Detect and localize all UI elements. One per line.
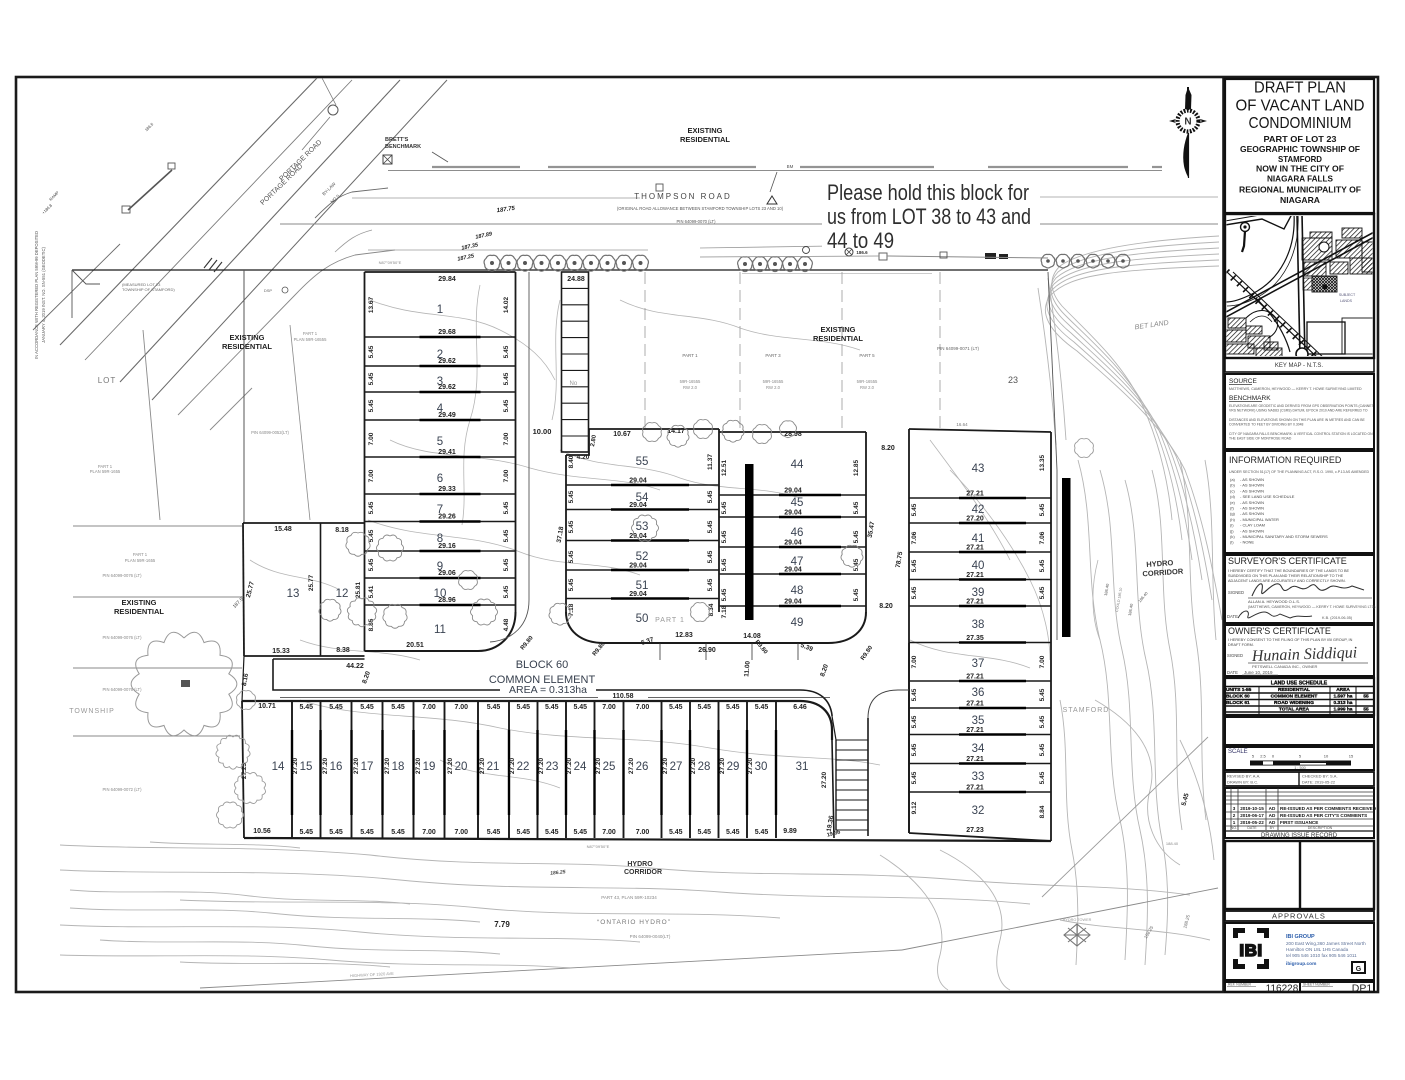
svg-text:EXISTING: EXISTING (121, 598, 156, 607)
svg-text:5.45: 5.45 (391, 829, 405, 836)
svg-text:27.21: 27.21 (966, 756, 984, 763)
svg-text:15: 15 (1349, 754, 1354, 759)
svg-text:27.20: 27.20 (566, 757, 573, 774)
svg-text:5.45: 5.45 (360, 829, 374, 836)
svg-text:PIN 64099-0076 (LT): PIN 64099-0076 (LT) (102, 635, 142, 640)
svg-text:ELEVATIONS ARE GEODETIC AND DE: ELEVATIONS ARE GEODETIC AND DERIVED FROM… (1229, 404, 1374, 408)
svg-text:AREA = 0.313ha: AREA = 0.313ha (509, 684, 587, 696)
svg-text:2019-05-22: 2019-05-22 (1240, 820, 1264, 825)
svg-text:K.B. (2019-06-05): K.B. (2019-06-05) (1322, 616, 1353, 620)
svg-text:AREA: AREA (1336, 687, 1350, 693)
svg-text:55: 55 (636, 456, 649, 468)
svg-text:5.45: 5.45 (707, 490, 714, 503)
svg-text:25.77: 25.77 (308, 574, 315, 591)
svg-text:10.56: 10.56 (253, 828, 271, 835)
svg-text:THE EAST SIDE OF MONTROSE ROAD: THE EAST SIDE OF MONTROSE ROAD (1229, 437, 1292, 441)
svg-text:PART 5: PART 5 (859, 353, 875, 358)
svg-text:8.20: 8.20 (881, 445, 895, 452)
svg-text:27.20: 27.20 (353, 757, 360, 774)
svg-text:RESIDENTIAL: RESIDENTIAL (680, 135, 730, 144)
svg-text:5.45: 5.45 (911, 559, 918, 572)
svg-text:(k): (k) (1230, 534, 1235, 539)
svg-text:49: 49 (791, 617, 804, 629)
svg-text:46: 46 (791, 527, 804, 539)
svg-text:18: 18 (392, 761, 405, 773)
svg-text:27.20: 27.20 (690, 757, 697, 774)
svg-text:I HEREBY CERTIFY THAT THE BOUN: I HEREBY CERTIFY THAT THE BOUNDARIES OF … (1228, 569, 1350, 573)
svg-text:UNDER SECTION 51(17) OF THE PL: UNDER SECTION 51(17) OF THE PLANNING ACT… (1229, 470, 1369, 474)
svg-text:DRAFT PLAN: DRAFT PLAN (1254, 80, 1346, 97)
svg-text:SUBJECT: SUBJECT (1339, 293, 1356, 297)
svg-text:TOWNSHIP: TOWNSHIP (69, 708, 115, 715)
svg-text:5.45: 5.45 (726, 829, 740, 836)
svg-text:8.84: 8.84 (1039, 805, 1046, 818)
svg-text:OF VACANT LAND: OF VACANT LAND (1236, 98, 1365, 115)
svg-text:(c): (c) (1230, 488, 1235, 493)
svg-text:OWNER'S CERTIFICATE: OWNER'S CERTIFICATE (1228, 626, 1331, 636)
svg-text:5.45: 5.45 (721, 530, 728, 543)
svg-text:ibigroup.com: ibigroup.com (1286, 961, 1316, 967)
svg-text:6.46: 6.46 (793, 704, 807, 711)
svg-text:HYDRO: HYDRO (627, 861, 653, 868)
svg-text:5.45: 5.45 (503, 529, 510, 542)
svg-text:7.79: 7.79 (494, 920, 510, 929)
svg-text:22: 22 (517, 761, 530, 773)
svg-text:5.45: 5.45 (853, 530, 860, 543)
svg-text:5.45: 5.45 (697, 704, 711, 711)
svg-text:8.18: 8.18 (335, 527, 349, 534)
svg-text:7.00: 7.00 (422, 704, 436, 711)
svg-text:25.81: 25.81 (355, 581, 362, 598)
svg-text:CITY OF NIAGARA FALLS BENCHMAR: CITY OF NIAGARA FALLS BENCHMARK: A VERTI… (1229, 432, 1373, 436)
svg-text:12.51: 12.51 (721, 459, 728, 476)
svg-text:7.00: 7.00 (454, 704, 468, 711)
svg-text:- AS SHOWN: - AS SHOWN (1240, 506, 1264, 511)
svg-text:5.45: 5.45 (1039, 743, 1046, 756)
svg-text:5.45: 5.45 (669, 829, 683, 836)
svg-text:5.45: 5.45 (299, 829, 313, 836)
svg-text:59R-16555: 59R-16555 (680, 379, 701, 384)
svg-text:27.21: 27.21 (966, 674, 984, 681)
svg-text:No_: No_ (569, 381, 581, 387)
svg-text:27.20: 27.20 (821, 771, 828, 788)
svg-text:11.37: 11.37 (707, 454, 714, 470)
svg-text:- AS SHOWN: - AS SHOWN (1240, 488, 1264, 493)
svg-text:29.04: 29.04 (784, 510, 802, 517)
svg-text:INFORMATION REQUIRED: INFORMATION REQUIRED (1229, 455, 1342, 465)
svg-text:29.04: 29.04 (784, 488, 802, 495)
svg-text:28.96: 28.96 (438, 597, 456, 604)
svg-text:NO.: NO. (1231, 826, 1237, 830)
svg-text:CONDOMINIUM: CONDOMINIUM (1249, 115, 1352, 132)
svg-text:29.16: 29.16 (438, 543, 456, 550)
svg-text:5.45: 5.45 (1039, 771, 1046, 784)
svg-text:5.45: 5.45 (1039, 715, 1046, 728)
svg-text:44: 44 (791, 459, 804, 471)
svg-text:14.08: 14.08 (743, 633, 761, 640)
svg-text:5.45: 5.45 (516, 704, 530, 711)
svg-text:1.999 ha: 1.999 ha (1334, 707, 1353, 713)
svg-text:CONVERTED TO FEET BY DIVIDING: CONVERTED TO FEET BY DIVIDING BY 0.3048 (1229, 423, 1304, 427)
svg-text:5.45: 5.45 (368, 345, 375, 358)
svg-text:DRAWN BY: B.C.: DRAWN BY: B.C. (1227, 780, 1258, 785)
svg-text:DATE: DATE (1247, 826, 1257, 830)
svg-text:5.45: 5.45 (911, 743, 918, 756)
svg-text:UNITS 1-55: UNITS 1-55 (1226, 687, 1252, 693)
svg-text:RW 2.0: RW 2.0 (683, 385, 698, 390)
svg-text:29.04: 29.04 (629, 478, 647, 485)
svg-text:(g): (g) (1230, 511, 1236, 516)
svg-text:29.33: 29.33 (438, 486, 456, 493)
svg-text:8.20: 8.20 (879, 603, 893, 610)
svg-text:VRS NETWORK) USING NAD83 (CSRS: VRS NETWORK) USING NAD83 (CSRS) DATUM, E… (1229, 409, 1368, 413)
svg-text:PIN 64099-0052(LT): PIN 64099-0052(LT) (251, 430, 289, 435)
svg-text:ADJACENT LANDS ARE ACCURATELY: ADJACENT LANDS ARE ACCURATELY AND CORREC… (1228, 579, 1346, 583)
svg-text:4.20: 4.20 (577, 454, 590, 461)
svg-text:AD: AD (1269, 820, 1276, 825)
svg-text:59R-16555: 59R-16555 (857, 379, 878, 384)
svg-text:27.21: 27.21 (966, 545, 984, 552)
svg-text:5.45: 5.45 (721, 501, 728, 514)
svg-text:15.33: 15.33 (272, 648, 290, 655)
svg-text:RW 2.0: RW 2.0 (860, 385, 875, 390)
svg-text:188.40: 188.40 (1166, 841, 1179, 846)
svg-text:27.23: 27.23 (966, 827, 984, 834)
svg-text:23: 23 (1008, 375, 1018, 385)
svg-text:5.45: 5.45 (368, 558, 375, 571)
svg-text:THOMPSON ROAD: THOMPSON ROAD (634, 192, 732, 201)
svg-text:29.62: 29.62 (438, 358, 456, 365)
svg-text:EXISTING: EXISTING (687, 126, 722, 135)
svg-text:7.18: 7.18 (568, 603, 575, 616)
svg-text:5.45: 5.45 (545, 704, 559, 711)
svg-text:7.18: 7.18 (721, 605, 728, 618)
svg-text:BLOCK 60: BLOCK 60 (1226, 694, 1250, 700)
svg-text:2: 2 (1233, 813, 1236, 818)
svg-text:5.45: 5.45 (503, 399, 510, 412)
svg-text:- AS SHOWN: - AS SHOWN (1240, 500, 1264, 505)
svg-text:27.20: 27.20 (509, 757, 516, 774)
svg-text:39: 39 (972, 587, 985, 599)
svg-text:55: 55 (1363, 694, 1369, 700)
svg-text:NOW IN THE CITY OF: NOW IN THE CITY OF (1256, 164, 1344, 174)
svg-text:27.20: 27.20 (747, 757, 754, 774)
svg-text:5.45: 5.45 (487, 829, 501, 836)
svg-text:29.04: 29.04 (629, 591, 647, 598)
svg-text:ALLAN A. HEYWOOD O.L.S.: ALLAN A. HEYWOOD O.L.S. (1248, 599, 1300, 604)
svg-text:5.45: 5.45 (911, 503, 918, 516)
svg-text:13.67: 13.67 (368, 296, 375, 313)
svg-text:7.00: 7.00 (368, 432, 375, 445)
svg-text:tel 905 546 1010 fax 905 54: tel 905 546 1010 fax 905 546 1011 (1286, 953, 1357, 958)
svg-text:BM: BM (787, 164, 794, 169)
svg-text:NIAGARA: NIAGARA (1280, 195, 1320, 205)
svg-text:16.64: 16.64 (956, 422, 968, 427)
svg-text:29.04: 29.04 (784, 567, 802, 574)
svg-text:N: N (1184, 117, 1191, 128)
svg-text:N87°09'50"E: N87°09'50"E (379, 260, 402, 265)
svg-text:5.45: 5.45 (669, 704, 683, 711)
svg-text:29.84: 29.84 (438, 276, 456, 283)
svg-text:TOWNSHIP OF STAMFORD): TOWNSHIP OF STAMFORD) (122, 287, 175, 292)
svg-text:27.21: 27.21 (966, 572, 984, 579)
svg-text:RE-ISSUED AS PER COMMENTS RECE: RE-ISSUED AS PER COMMENTS RECEIVED (1280, 806, 1377, 811)
svg-text:5.45: 5.45 (911, 771, 918, 784)
svg-text:5.45: 5.45 (516, 829, 530, 836)
svg-text:(e): (e) (1230, 500, 1236, 505)
svg-text:1: 1 (1233, 820, 1236, 825)
svg-text:26.90: 26.90 (698, 647, 716, 654)
svg-text:PIN 64099-0071 (LT): PIN 64099-0071 (LT) (937, 346, 979, 351)
svg-text:110.58: 110.58 (612, 693, 633, 700)
svg-text:29: 29 (727, 761, 740, 773)
svg-text:27.20: 27.20 (719, 757, 726, 774)
svg-text:REF. NUMBER: REF. NUMBER (1228, 983, 1252, 987)
svg-text:APPROVALS: APPROVALS (1272, 912, 1326, 921)
svg-text:5.45: 5.45 (568, 490, 575, 503)
svg-text:29.68: 29.68 (438, 329, 456, 336)
svg-text:9.89: 9.89 (783, 828, 797, 835)
svg-text:29.49: 29.49 (438, 412, 456, 419)
svg-text:7.00: 7.00 (602, 829, 616, 836)
svg-text:28: 28 (698, 761, 711, 773)
svg-text:(f): (f) (1230, 506, 1234, 511)
svg-text:27.20: 27.20 (384, 757, 391, 774)
svg-text:20.51: 20.51 (406, 642, 424, 649)
svg-text:5.45: 5.45 (1039, 586, 1046, 599)
svg-text:COMMON ELEMENT: COMMON ELEMENT (1271, 694, 1318, 700)
svg-text:35: 35 (972, 715, 985, 727)
svg-text:SHEET NUMBER: SHEET NUMBER (1303, 983, 1330, 987)
svg-text:NIAGARA FALLS: NIAGARA FALLS (1267, 174, 1333, 184)
svg-text:PART 1: PART 1 (682, 353, 698, 358)
svg-text:5.45: 5.45 (721, 558, 728, 571)
svg-text:FIRST ISSUANCE: FIRST ISSUANCE (1280, 820, 1318, 825)
svg-text:SCALE: SCALE (1228, 749, 1248, 755)
svg-text:29.06: 29.06 (438, 570, 456, 577)
svg-text:AD: AD (1269, 806, 1276, 811)
svg-text:59R-16555: 59R-16555 (763, 379, 784, 384)
svg-text:27.21: 27.21 (966, 491, 984, 498)
svg-text:11: 11 (434, 624, 446, 636)
svg-text:11.00: 11.00 (743, 660, 751, 677)
svg-text:DRAWING ISSUE RECORD: DRAWING ISSUE RECORD (1261, 833, 1338, 839)
svg-text:7.00: 7.00 (454, 829, 468, 836)
svg-text:5.45: 5.45 (503, 558, 510, 571)
svg-text:5.41: 5.41 (368, 585, 375, 598)
svg-text:DISTANCES AND ELEVATIONS SHOWN: DISTANCES AND ELEVATIONS SHOWN ON THIS P… (1229, 418, 1366, 422)
svg-text:BRETT'S: BRETT'S (385, 137, 409, 143)
svg-text:BLOCK 60: BLOCK 60 (516, 659, 569, 671)
svg-text:(d): (d) (1230, 494, 1236, 499)
svg-text:7.00: 7.00 (636, 829, 650, 836)
svg-text:5.45: 5.45 (1039, 503, 1046, 516)
svg-text:13.35: 13.35 (1039, 454, 1046, 471)
svg-text:(h): (h) (1230, 517, 1236, 522)
svg-text:SIGNED: SIGNED (1228, 590, 1244, 595)
svg-text:5.45: 5.45 (853, 501, 860, 514)
svg-text:5.45: 5.45 (755, 829, 769, 836)
svg-text:31: 31 (796, 761, 809, 773)
svg-text:REGIONAL MUNICIPALITY OF: REGIONAL MUNICIPALITY OF (1239, 185, 1361, 195)
svg-text:13: 13 (287, 588, 300, 600)
svg-text:14.02: 14.02 (503, 296, 510, 313)
svg-text:LAND USE SCHEDULE: LAND USE SCHEDULE (1271, 681, 1328, 687)
svg-text:(MATTHEWS, CAMERON, HEYWOOD —: (MATTHEWS, CAMERON, HEYWOOD — KERRY T. H… (1248, 605, 1375, 609)
svg-text:27.20: 27.20 (447, 757, 454, 774)
svg-text:STAMFORD: STAMFORD (1063, 707, 1110, 714)
svg-text:32: 32 (972, 805, 985, 817)
svg-text:5.45: 5.45 (329, 829, 343, 836)
svg-text:5.45: 5.45 (721, 588, 728, 601)
svg-text:42: 42 (972, 504, 985, 516)
svg-text:(ORIGINAL ROAD ALLOWANCE BETWE: (ORIGINAL ROAD ALLOWANCE BETWEEN STAMFOR… (617, 206, 784, 211)
svg-text:8.38: 8.38 (336, 647, 350, 654)
svg-text:7.00: 7.00 (1039, 655, 1046, 668)
svg-text:25: 25 (603, 761, 616, 773)
svg-text:5.45: 5.45 (707, 550, 714, 563)
svg-text:IBI: IBI (1239, 941, 1262, 960)
svg-text:PETSWELL CANADA INC., OWNER: PETSWELL CANADA INC., OWNER (1252, 664, 1318, 669)
svg-text:45: 45 (791, 497, 804, 509)
svg-text:27.20: 27.20 (662, 757, 669, 774)
svg-text:5.45: 5.45 (707, 578, 714, 591)
svg-text:PART 1: PART 1 (303, 331, 318, 336)
svg-text:5.45: 5.45 (329, 704, 343, 711)
svg-text:REVISED BY: A.A.: REVISED BY: A.A. (1227, 774, 1260, 779)
svg-text:27.20: 27.20 (538, 757, 545, 774)
svg-text:7.00: 7.00 (911, 655, 918, 668)
svg-text:DRAFT FORM.: DRAFT FORM. (1228, 643, 1254, 647)
svg-text:- AS SHOWN: - AS SHOWN (1240, 483, 1264, 488)
svg-text:52: 52 (636, 551, 649, 563)
svg-text:37: 37 (972, 658, 985, 670)
svg-text:2.5: 2.5 (1260, 754, 1266, 759)
svg-text:- AS SHOWN: - AS SHOWN (1240, 528, 1264, 533)
svg-text:RESIDENTIAL: RESIDENTIAL (222, 342, 272, 351)
svg-text:27: 27 (670, 761, 683, 773)
svg-text:48: 48 (791, 585, 804, 597)
svg-text:DATE: DATE (1227, 614, 1238, 619)
svg-text:BENCHMARK: BENCHMARK (1229, 395, 1271, 402)
svg-text:5.45: 5.45 (360, 704, 374, 711)
svg-text:7.00: 7.00 (503, 469, 510, 482)
svg-text:7.06: 7.06 (1039, 531, 1046, 544)
svg-text:5.45: 5.45 (755, 704, 769, 711)
svg-text:29.04: 29.04 (629, 502, 647, 509)
svg-text:8.40: 8.40 (568, 455, 575, 468)
svg-text:5.45: 5.45 (368, 501, 375, 514)
svg-text:LOT: LOT (98, 376, 117, 385)
svg-text:Please hold this block for: Please hold this block for (827, 180, 1029, 205)
svg-text:SURVEYOR'S CERTIFICATE: SURVEYOR'S CERTIFICATE (1228, 556, 1347, 566)
svg-text:PLAN 59R-1655: PLAN 59R-1655 (125, 558, 156, 563)
svg-text:PIN 64099-0076 (LT): PIN 64099-0076 (LT) (102, 573, 142, 578)
svg-text:186.6: 186.6 (856, 250, 868, 255)
svg-text:CORRIDOR: CORRIDOR (624, 869, 662, 876)
svg-text:15: 15 (300, 761, 313, 773)
svg-text:5.45: 5.45 (853, 588, 860, 601)
svg-text:BENCHMARK: BENCHMARK (385, 144, 421, 150)
svg-text:5.45: 5.45 (503, 585, 510, 598)
svg-text:5.45: 5.45 (368, 372, 375, 385)
svg-text:2019-10-15: 2019-10-15 (1240, 806, 1264, 811)
svg-text:17: 17 (361, 761, 374, 773)
svg-text:PIN 64099-0040(LT): PIN 64099-0040(LT) (630, 934, 671, 939)
svg-text:RESIDENTIAL: RESIDENTIAL (1278, 687, 1310, 693)
svg-text:29.04: 29.04 (784, 540, 802, 547)
svg-text:JANUARY 4, 2019 INST. NO. SN-5: JANUARY 4, 2019 INST. NO. SN-551 (GEODET… (41, 247, 46, 343)
svg-text:TOTAL AREA: TOTAL AREA (1279, 707, 1310, 713)
svg-text:STAMFORD: STAMFORD (1278, 154, 1322, 164)
svg-text:29.41: 29.41 (438, 449, 456, 456)
svg-text:1.597 ha: 1.597 ha (1334, 694, 1353, 700)
svg-text:RESIDENTIAL: RESIDENTIAL (813, 334, 863, 343)
svg-text:5.45: 5.45 (573, 704, 587, 711)
svg-text:29.04: 29.04 (629, 563, 647, 570)
svg-text:29.04: 29.04 (784, 599, 802, 606)
svg-text:5.45: 5.45 (911, 688, 918, 701)
svg-text:SUBDIVIDED ON THIS PLAN AND TH: SUBDIVIDED ON THIS PLAN AND THEIR RELATI… (1228, 574, 1344, 578)
svg-text:DSP: DSP (264, 288, 273, 293)
svg-text:5.45: 5.45 (911, 715, 918, 728)
svg-text:5: 5 (437, 436, 443, 448)
svg-text:27.21: 27.21 (966, 785, 984, 792)
svg-text:5.45: 5.45 (573, 829, 587, 836)
svg-text:27.20: 27.20 (479, 757, 486, 774)
svg-text:DATE: DATE (1227, 670, 1238, 675)
svg-text:HYDRO TOWER: HYDRO TOWER (1063, 918, 1092, 922)
svg-text:IBI GROUP: IBI GROUP (1286, 934, 1315, 940)
svg-text:9.12: 9.12 (911, 801, 918, 814)
svg-text:RW 2.0: RW 2.0 (766, 385, 781, 390)
svg-text:3: 3 (1233, 806, 1236, 811)
svg-text:SIGNED: SIGNED (1227, 653, 1243, 658)
svg-text:5.45: 5.45 (568, 550, 575, 563)
svg-text:IN ACCORDANCE WITH REGISTERED: IN ACCORDANCE WITH REGISTERED PLAN 59M-9… (34, 231, 39, 359)
svg-text:27.20: 27.20 (322, 757, 329, 774)
svg-text:PART 1: PART 1 (133, 552, 148, 557)
svg-text:5.45: 5.45 (503, 501, 510, 514)
svg-text:5.45: 5.45 (568, 520, 575, 533)
svg-text:5.45: 5.45 (503, 345, 510, 358)
svg-text:40: 40 (972, 560, 985, 572)
svg-text:15.48: 15.48 (274, 526, 292, 533)
svg-text:5.45: 5.45 (368, 399, 375, 412)
svg-text:7.00: 7.00 (636, 704, 650, 711)
svg-text:us from LOT 38 to 43 and: us from LOT 38 to 43 and (827, 204, 1031, 229)
svg-text:- MUNICIPAL SANITARY AND STOR: - MUNICIPAL SANITARY AND STORM SEWERS (1240, 534, 1328, 539)
svg-text:RESIDENTIAL: RESIDENTIAL (114, 607, 164, 616)
svg-text:5.45: 5.45 (911, 586, 918, 599)
svg-text:24: 24 (574, 761, 587, 773)
svg-text:PART OF LOT 23: PART OF LOT 23 (1264, 134, 1337, 144)
svg-text:7.06: 7.06 (911, 531, 918, 544)
svg-text:BY: BY (1270, 826, 1275, 830)
svg-text:PLAN 59R-16555: PLAN 59R-16555 (294, 337, 327, 342)
svg-text:0.313 ha: 0.313 ha (1334, 700, 1353, 706)
svg-text:AD: AD (1269, 813, 1276, 818)
svg-text:PIN 64099-0070 (LT): PIN 64099-0070 (LT) (676, 219, 716, 224)
svg-text:DP1: DP1 (1352, 983, 1373, 995)
svg-text:27.21: 27.21 (966, 599, 984, 606)
svg-text:27.20: 27.20 (966, 516, 984, 523)
svg-text:28.98: 28.98 (784, 431, 802, 438)
svg-text:20: 20 (455, 761, 468, 773)
svg-text:LANDS: LANDS (1340, 299, 1353, 303)
svg-text:200 East Wing,360 James Street: 200 East Wing,360 James Street North (1286, 941, 1366, 946)
svg-text:41: 41 (972, 533, 985, 545)
